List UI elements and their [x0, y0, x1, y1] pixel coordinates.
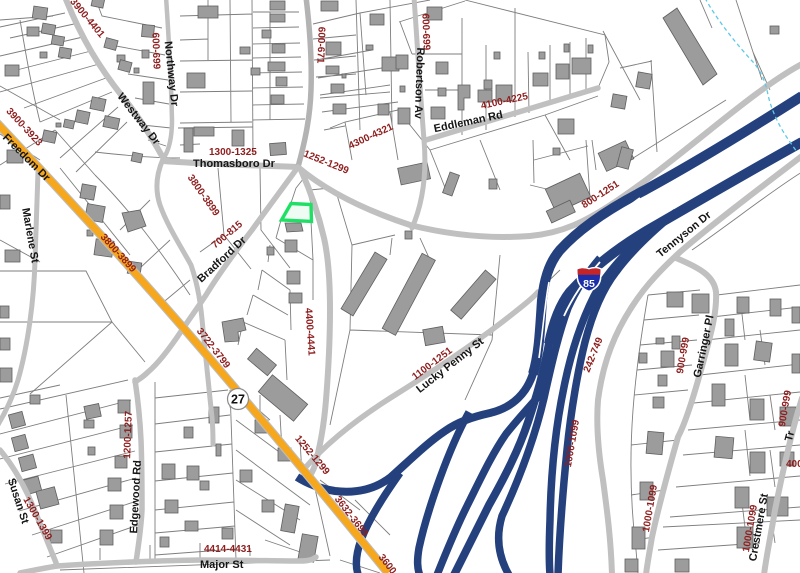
svg-text:Thomasboro Dr: Thomasboro Dr [193, 158, 276, 170]
svg-text:27: 27 [231, 393, 245, 407]
svg-text:1200-1257: 1200-1257 [122, 410, 135, 459]
svg-text:Robertson Av: Robertson Av [412, 47, 427, 120]
svg-text:Major St: Major St [200, 559, 244, 571]
svg-text:1300-1325: 1300-1325 [209, 147, 257, 158]
svg-text:4414-4431: 4414-4431 [204, 544, 252, 555]
svg-text:85: 85 [583, 278, 595, 290]
svg-text:600-699: 600-699 [149, 32, 161, 69]
svg-text:600-699: 600-699 [419, 13, 431, 50]
svg-text:600-671: 600-671 [314, 27, 326, 64]
svg-text:400: 400 [786, 459, 800, 470]
